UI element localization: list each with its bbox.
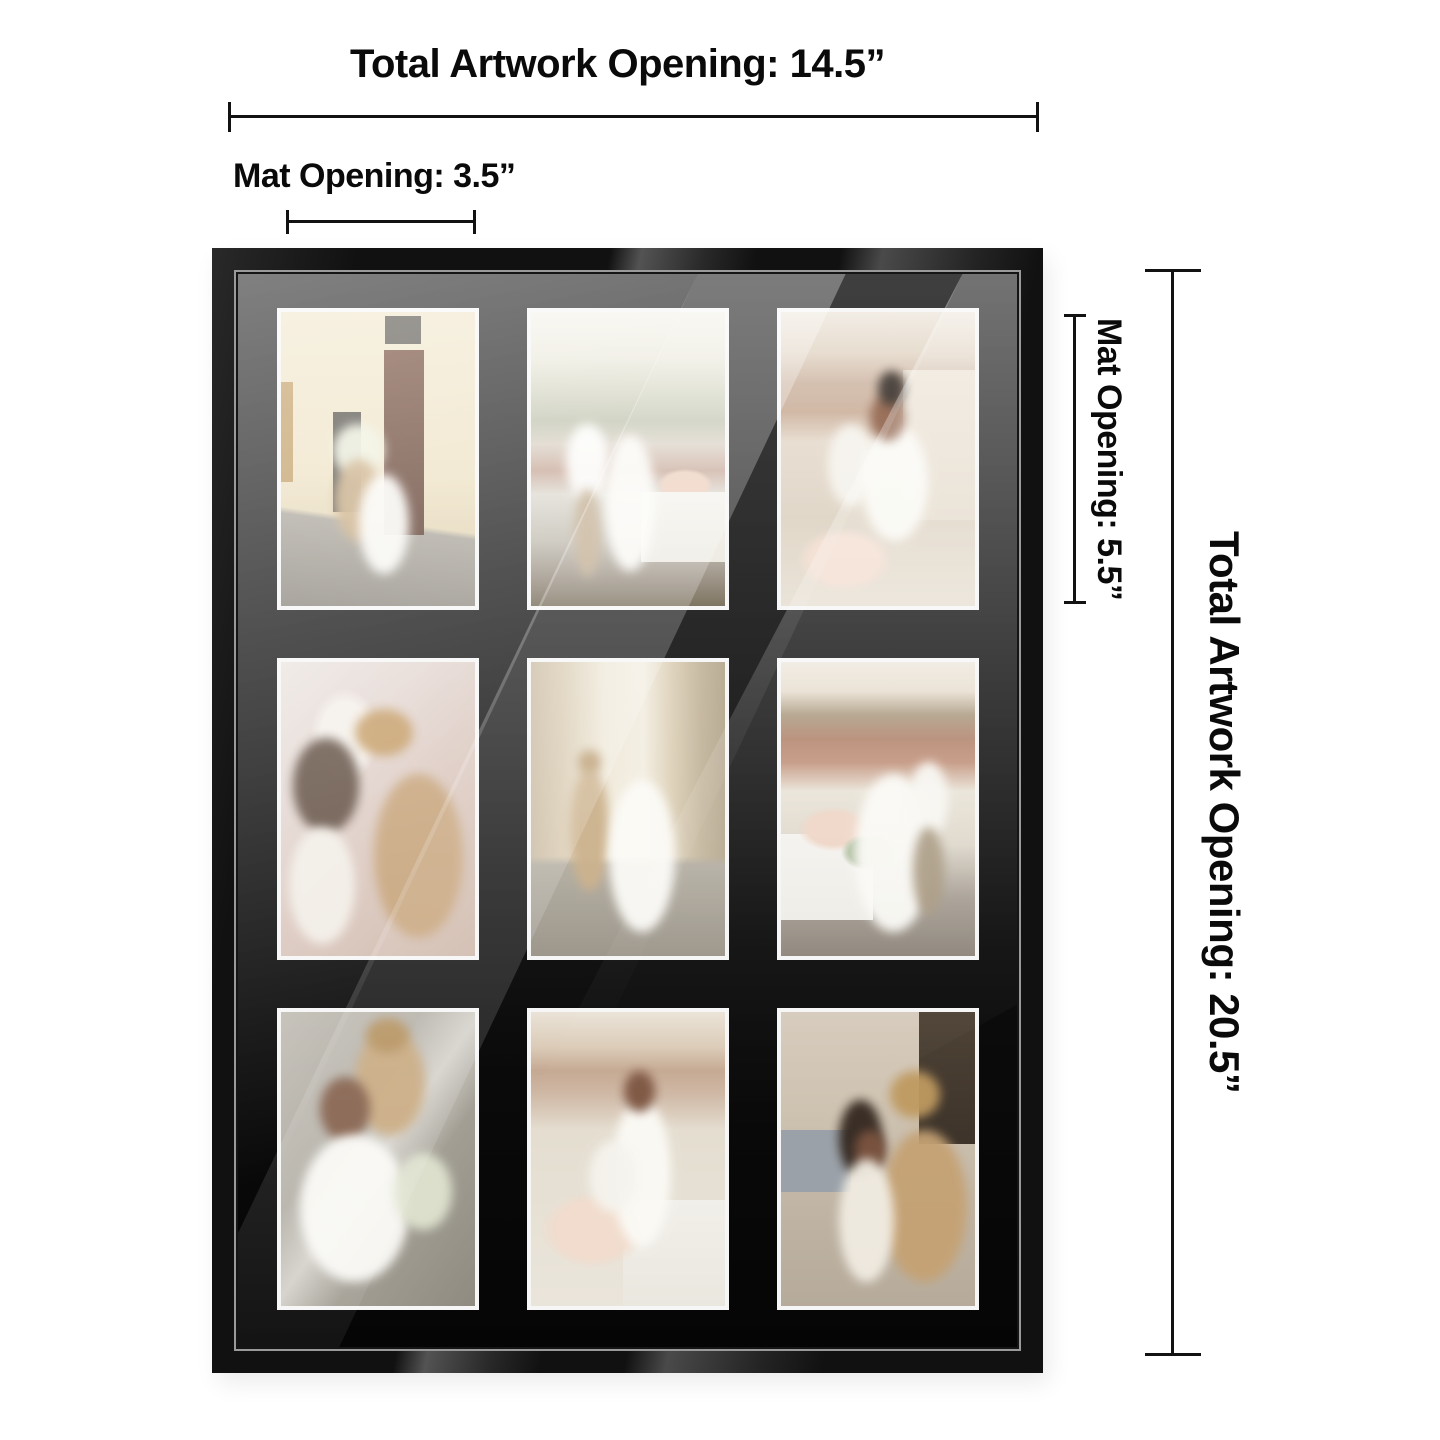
picture-frame: [212, 248, 1043, 1373]
collage-photo-1: [277, 308, 479, 610]
total-width-label: Total Artwork Opening: 14.5”: [212, 42, 1023, 87]
total-height-dimension-line: [1171, 269, 1174, 1356]
total-width-dimension-line: [228, 115, 1039, 118]
collage-photo-4: [277, 658, 479, 960]
product-dimension-diagram: Total Artwork Opening: 14.5” Mat Opening…: [0, 0, 1440, 1440]
frame-inner-lip: [234, 270, 1021, 1351]
collage-photo-5: [527, 658, 729, 960]
collage-photo-9: [777, 1008, 979, 1310]
total-height-label: Total Artwork Opening: 20.5”: [1200, 269, 1248, 1356]
collage-photo-2: [527, 308, 729, 610]
mat-width-dimension-line: [286, 220, 476, 223]
collage-photo-3: [777, 308, 979, 610]
collage-photo-8: [527, 1008, 729, 1310]
collage-photo-7: [277, 1008, 479, 1310]
black-mat: [238, 274, 1017, 1347]
collage-photo-6: [777, 658, 979, 960]
mat-height-dimension-line: [1073, 314, 1076, 604]
mat-height-label: Mat Opening: 5.5”: [1089, 314, 1128, 604]
mat-width-label: Mat Opening: 3.5”: [233, 157, 515, 196]
